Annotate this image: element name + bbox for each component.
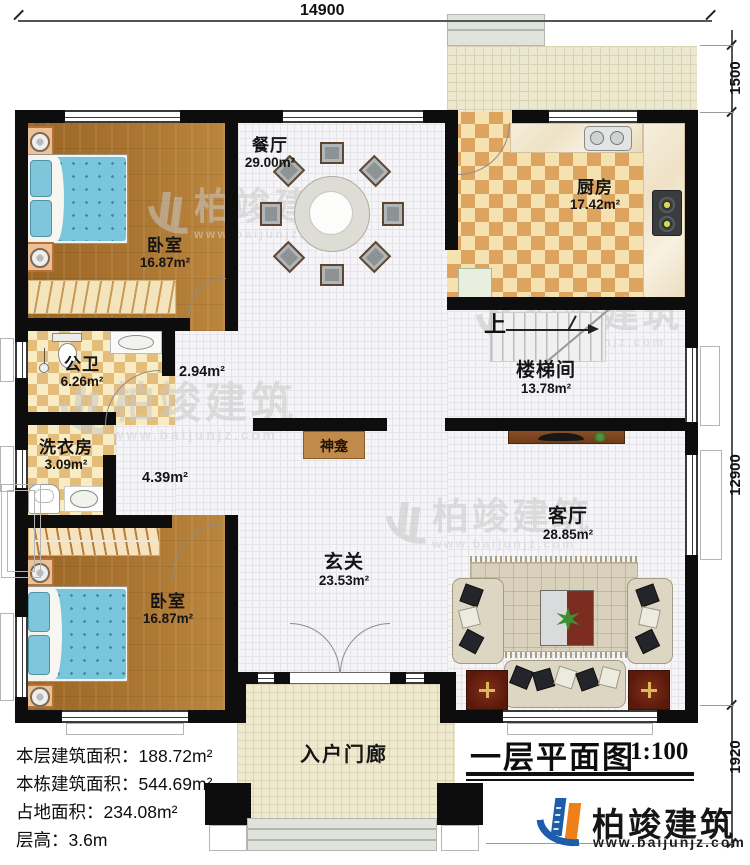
room-label-stairwell: 楼梯间 13.78m² bbox=[516, 360, 576, 396]
info-value: 234.08m² bbox=[104, 802, 178, 822]
bay-window-frame bbox=[0, 338, 14, 382]
room-label-bedroom2: 卧室 16.87m² bbox=[143, 592, 193, 626]
kitchen-sink bbox=[584, 126, 632, 151]
bed-quilt bbox=[52, 589, 126, 679]
room-label-porch: 入户门廊 bbox=[300, 744, 388, 766]
room-name: 卧室 bbox=[143, 592, 193, 611]
wall bbox=[390, 672, 406, 684]
area-label-corridor1: 2.94m² bbox=[179, 364, 225, 380]
wall bbox=[685, 110, 698, 348]
laundry-sink bbox=[70, 490, 98, 508]
porch-pillar bbox=[437, 783, 483, 825]
logo-swoosh bbox=[537, 816, 580, 850]
room-area: 4.39m² bbox=[142, 470, 188, 486]
info-label: 层高： bbox=[16, 830, 69, 850]
dimension-right-top: 1500 bbox=[727, 43, 743, 113]
dining-table-center bbox=[309, 191, 353, 235]
wall bbox=[15, 412, 116, 425]
side-table bbox=[628, 670, 670, 710]
bed-pillow bbox=[28, 635, 50, 675]
hanging-lamp bbox=[39, 363, 49, 373]
bed-pillow bbox=[28, 592, 50, 632]
dim-tick bbox=[705, 10, 715, 20]
table-plant bbox=[556, 607, 580, 631]
room-name: 楼梯间 bbox=[516, 360, 576, 381]
room-name: 厨房 bbox=[570, 178, 620, 197]
window bbox=[549, 110, 637, 123]
wardrobe bbox=[28, 526, 160, 556]
wall bbox=[15, 110, 28, 342]
bay-window-frame bbox=[0, 613, 14, 701]
wall bbox=[246, 672, 258, 684]
dining-chair bbox=[320, 142, 344, 164]
wall bbox=[685, 422, 698, 455]
info-label: 本栋建筑面积： bbox=[16, 774, 139, 794]
plant bbox=[594, 432, 606, 442]
title-underline-thin bbox=[466, 779, 694, 781]
info-line: 占地面积：234.08m² bbox=[16, 798, 246, 826]
room-area: 6.26m² bbox=[61, 374, 104, 389]
room-area: 3.09m² bbox=[39, 457, 93, 472]
window bbox=[685, 348, 698, 422]
stove-burner bbox=[659, 197, 675, 213]
porch-step bbox=[247, 829, 437, 840]
info-value: 544.69m² bbox=[139, 774, 213, 794]
info-block: 本层建筑面积：188.72m² 本栋建筑面积：544.69m² 占地面积：234… bbox=[16, 742, 246, 854]
plan-title: 一层平面图 bbox=[470, 732, 635, 777]
lamp-cord bbox=[44, 348, 45, 364]
witness-line bbox=[700, 705, 734, 706]
shrine-label: 神龛 bbox=[320, 438, 348, 454]
info-label: 占地面积： bbox=[16, 802, 104, 822]
window bbox=[65, 110, 180, 123]
wall bbox=[424, 672, 442, 684]
room-label-kitchen: 厨房 17.42m² bbox=[570, 178, 620, 212]
room-area: 16.87m² bbox=[143, 611, 193, 626]
title-underline bbox=[466, 772, 694, 776]
window bbox=[685, 455, 698, 555]
stove-burner bbox=[659, 216, 675, 232]
room-area: 23.53m² bbox=[319, 573, 369, 588]
wall bbox=[445, 418, 685, 431]
room-area: 13.78m² bbox=[516, 381, 576, 396]
tv bbox=[538, 433, 584, 441]
sink-basin bbox=[590, 131, 604, 145]
room-label-living: 客厅 28.85m² bbox=[543, 506, 593, 542]
bay-window-frame bbox=[700, 450, 722, 560]
wall bbox=[512, 110, 549, 123]
room-name: 卧室 bbox=[140, 236, 190, 255]
room-name: 洗衣房 bbox=[39, 438, 93, 457]
stairs-up-label: 上 bbox=[484, 307, 506, 339]
window bbox=[15, 342, 28, 378]
brand-logo-icon bbox=[536, 796, 588, 852]
bedroom-rug bbox=[28, 280, 176, 314]
balcony-step bbox=[447, 30, 545, 46]
stairs-direction-line bbox=[506, 329, 590, 331]
dim-tick bbox=[13, 10, 23, 20]
window bbox=[503, 710, 657, 723]
sofa-pillow bbox=[638, 606, 661, 629]
nightstand bbox=[24, 684, 54, 708]
room-area: 17.42m² bbox=[570, 197, 620, 212]
bay-window-frame bbox=[7, 490, 35, 572]
bed-pillow bbox=[30, 200, 52, 237]
nightstand bbox=[24, 126, 54, 156]
window bbox=[406, 672, 424, 684]
wall bbox=[685, 555, 698, 723]
room-label-dining: 餐厅 29.00m² bbox=[245, 136, 295, 170]
wall bbox=[15, 318, 190, 331]
wall bbox=[274, 672, 290, 684]
room-name: 公卫 bbox=[61, 355, 104, 374]
plan-scale: 1:100 bbox=[630, 738, 688, 766]
sink-basin bbox=[610, 131, 624, 145]
floor-plan: 柏竣建筑 www.baijunjz.com 柏竣建筑 www.baijunjz.… bbox=[0, 0, 750, 865]
room-area: 2.94m² bbox=[179, 364, 225, 380]
room-name: 入户门廊 bbox=[300, 744, 388, 766]
kitchen-appliance bbox=[458, 268, 492, 298]
room-label-foyer: 玄关 23.53m² bbox=[319, 552, 369, 588]
window-sill bbox=[66, 723, 184, 735]
dining-chair bbox=[382, 202, 404, 226]
brand-url: www.baijunjz.com bbox=[593, 834, 746, 850]
wall bbox=[445, 110, 458, 250]
window bbox=[283, 110, 423, 123]
toilet-tank bbox=[52, 333, 82, 342]
info-label: 本层建筑面积： bbox=[16, 746, 139, 766]
wall bbox=[162, 331, 175, 376]
info-line: 层高：3.6m bbox=[16, 826, 246, 854]
dimension-right-middle: 12900 bbox=[727, 440, 743, 510]
bed-pillow bbox=[30, 160, 52, 197]
porch-step bbox=[247, 818, 437, 829]
room-label-bedroom1: 卧室 16.87m² bbox=[140, 236, 190, 270]
info-value: 188.72m² bbox=[139, 746, 213, 766]
window bbox=[15, 617, 28, 697]
window bbox=[15, 450, 28, 488]
room-area: 28.85m² bbox=[543, 527, 593, 542]
coffee-table bbox=[540, 590, 594, 646]
wardrobe-rail bbox=[31, 540, 157, 542]
info-value: 3.6m bbox=[69, 830, 108, 850]
info-line: 本层建筑面积：188.72m² bbox=[16, 742, 246, 770]
nightstand bbox=[24, 242, 54, 272]
room-name: 玄关 bbox=[319, 552, 369, 573]
dining-chair bbox=[320, 264, 344, 286]
dimension-right-bottom: 1920 bbox=[727, 722, 743, 792]
room-name: 餐厅 bbox=[245, 136, 295, 155]
pillar-base bbox=[441, 825, 479, 851]
wall bbox=[225, 110, 238, 331]
side-table bbox=[466, 670, 508, 710]
room-area: 16.87m² bbox=[140, 255, 190, 270]
bay-window-frame bbox=[700, 346, 720, 426]
shrine-cabinet: 神龛 bbox=[303, 431, 365, 459]
door-threshold bbox=[290, 672, 390, 684]
room-label-bathroom: 公卫 6.26m² bbox=[61, 355, 104, 389]
window bbox=[62, 710, 188, 723]
room-label-laundry: 洗衣房 3.09m² bbox=[39, 438, 93, 472]
wall bbox=[230, 672, 246, 723]
dining-table bbox=[294, 176, 370, 252]
porch-step bbox=[247, 840, 437, 851]
bed-quilt bbox=[54, 157, 126, 241]
room-area: 29.00m² bbox=[245, 155, 295, 170]
info-line: 本栋建筑面积：544.69m² bbox=[16, 770, 246, 798]
arrow-head-icon bbox=[588, 324, 599, 334]
area-label-corridor2: 4.39m² bbox=[142, 470, 188, 486]
window bbox=[258, 672, 274, 684]
wall bbox=[440, 672, 456, 723]
dining-chair bbox=[260, 202, 282, 226]
floor-balcony bbox=[447, 46, 697, 112]
bath-sink bbox=[118, 335, 154, 350]
dimension-top: 14900 bbox=[300, 2, 345, 20]
dimension-line-top bbox=[18, 20, 712, 22]
wall bbox=[253, 418, 387, 431]
stairs bbox=[490, 312, 606, 362]
balcony-step bbox=[447, 14, 545, 30]
room-name: 客厅 bbox=[543, 506, 593, 527]
kitchen-stove bbox=[652, 190, 682, 236]
